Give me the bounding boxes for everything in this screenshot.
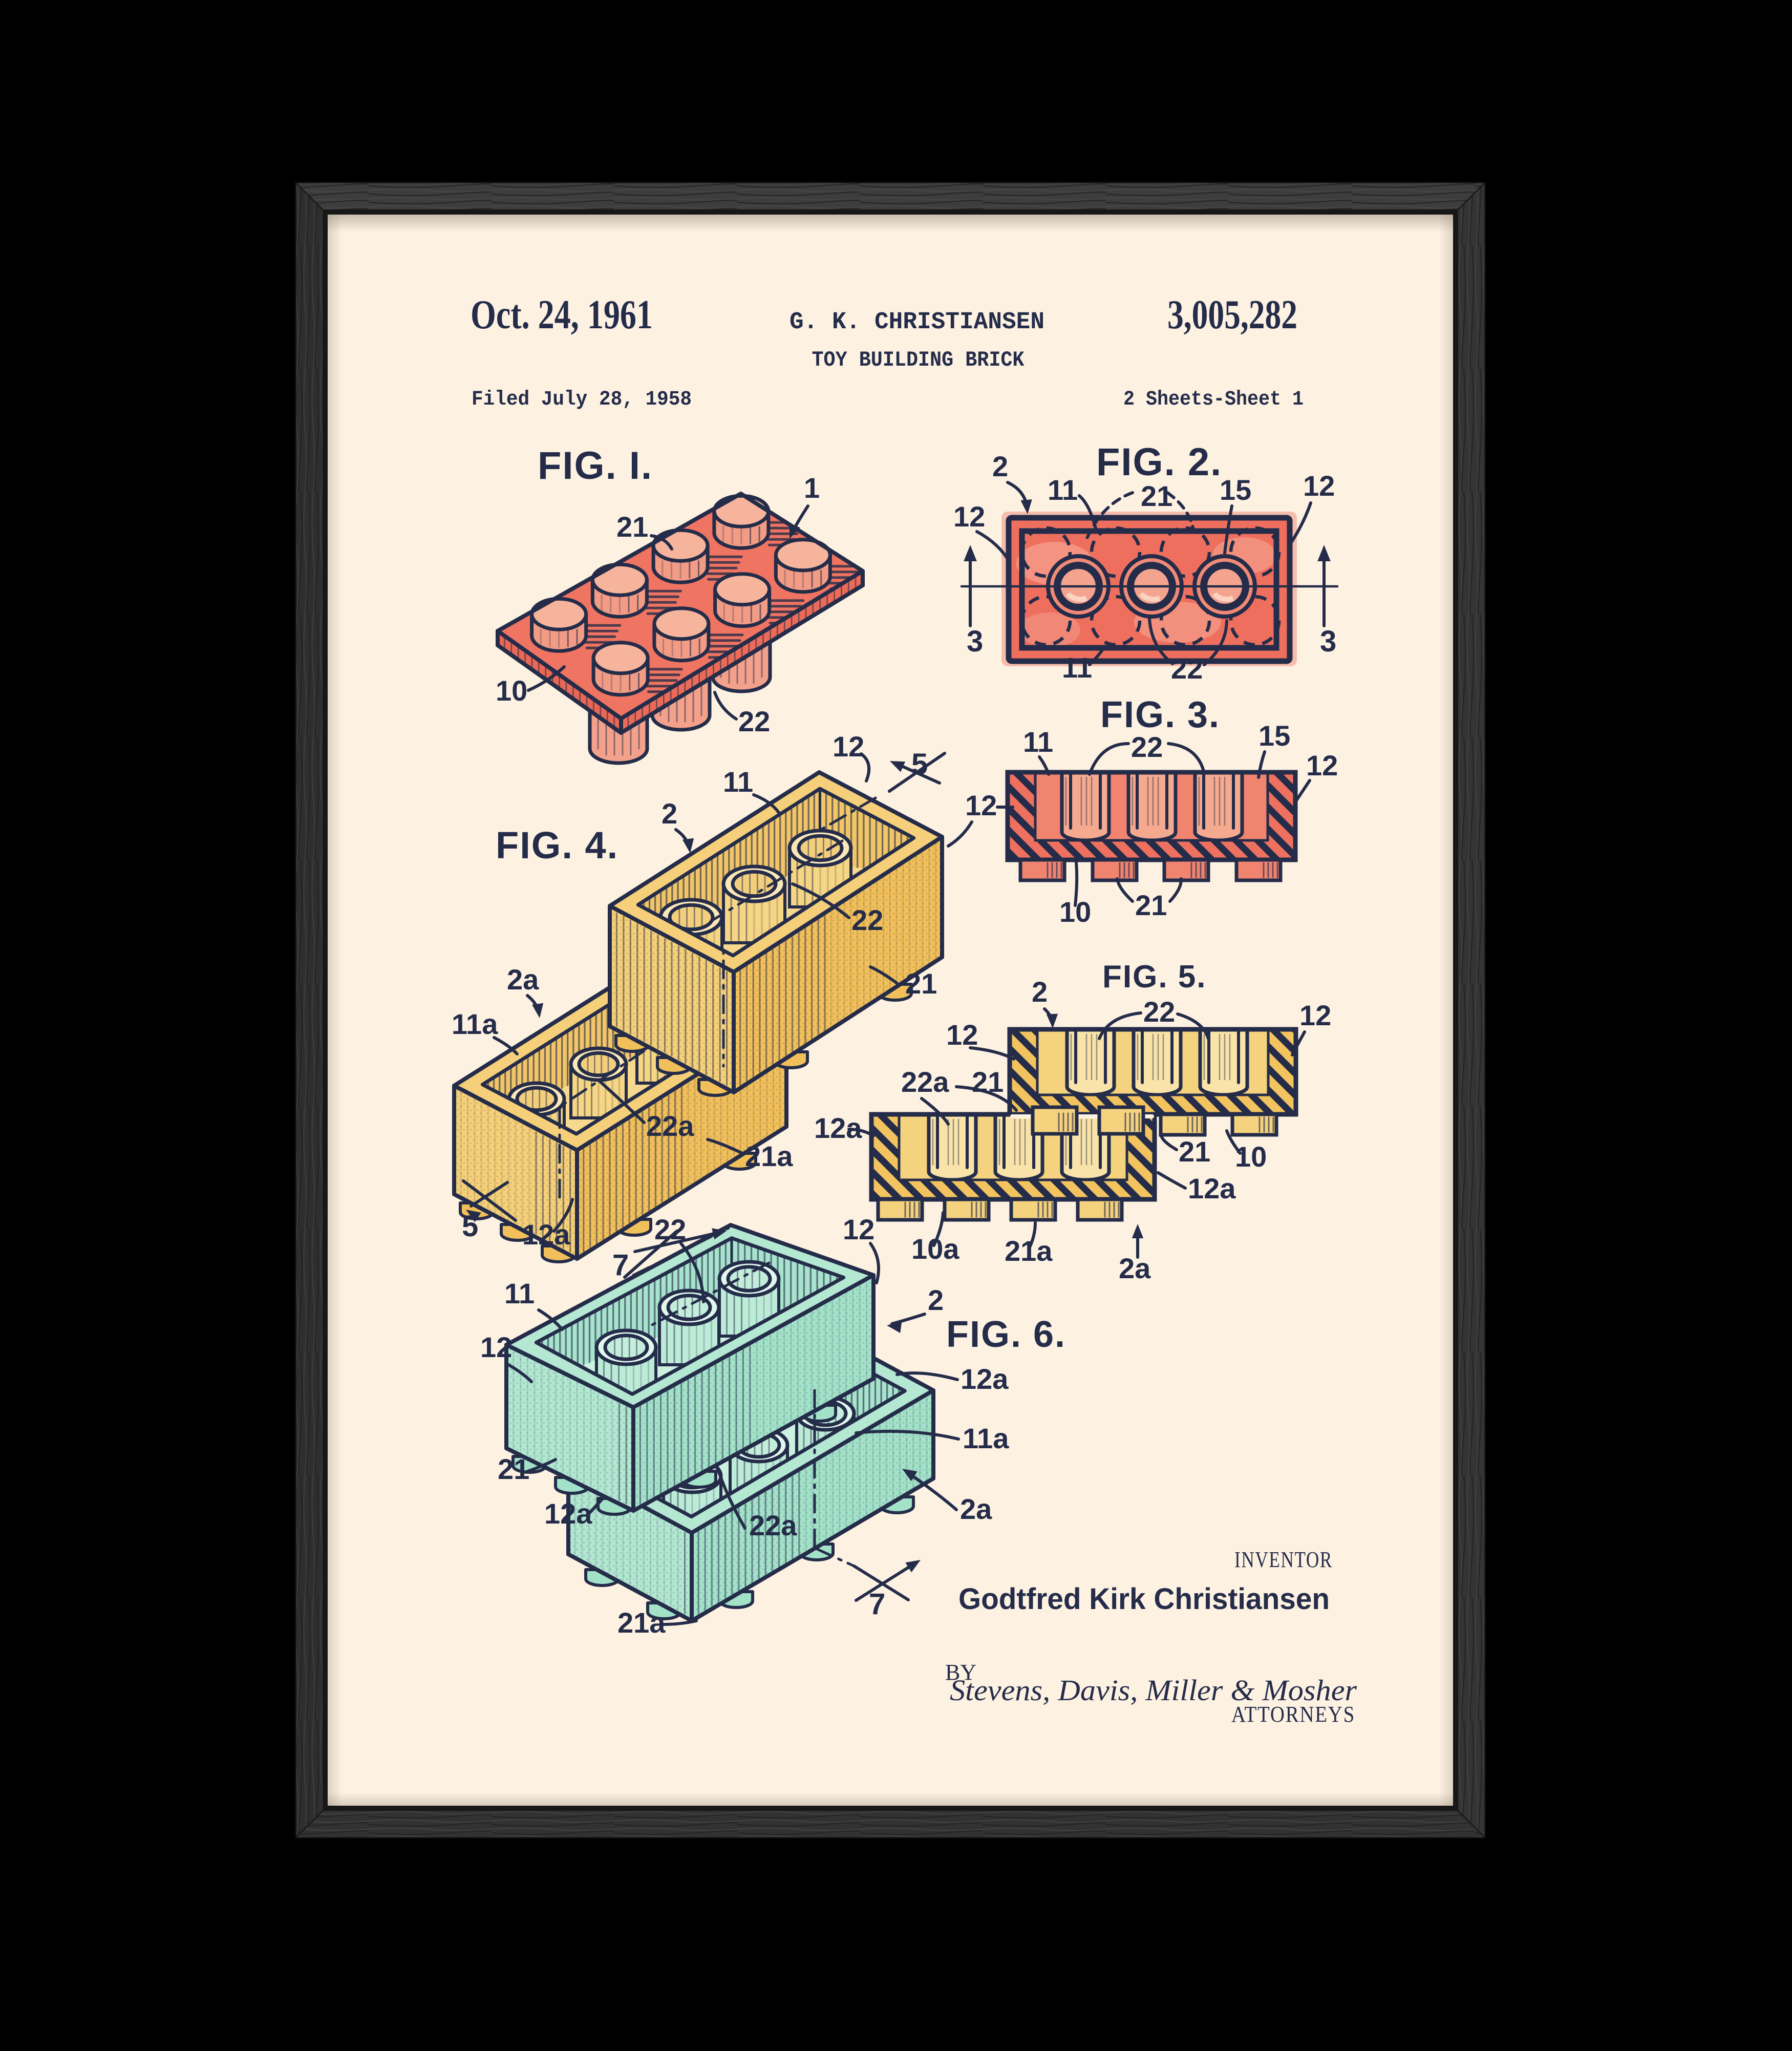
svg-text:22: 22 bbox=[851, 904, 883, 936]
svg-text:10: 10 bbox=[1235, 1140, 1267, 1173]
svg-text:3: 3 bbox=[1320, 625, 1336, 658]
svg-text:2: 2 bbox=[662, 797, 677, 830]
svg-text:22: 22 bbox=[1171, 652, 1203, 685]
svg-text:21: 21 bbox=[616, 511, 648, 543]
svg-text:22: 22 bbox=[738, 705, 770, 737]
svg-text:INVENTOR: INVENTOR bbox=[1234, 1547, 1333, 1572]
svg-text:12: 12 bbox=[946, 1019, 978, 1051]
svg-text:21a: 21a bbox=[1005, 1235, 1053, 1267]
svg-text:15: 15 bbox=[1258, 720, 1290, 752]
svg-text:2a: 2a bbox=[960, 1493, 992, 1525]
svg-text:12a: 12a bbox=[544, 1497, 592, 1530]
svg-text:12a: 12a bbox=[522, 1218, 570, 1251]
svg-text:11: 11 bbox=[1062, 651, 1092, 684]
svg-text:7: 7 bbox=[869, 1588, 885, 1621]
svg-text:21: 21 bbox=[1141, 480, 1172, 512]
svg-text:12: 12 bbox=[480, 1331, 512, 1363]
svg-text:1: 1 bbox=[804, 472, 820, 504]
svg-text:22: 22 bbox=[1131, 731, 1163, 763]
svg-text:12: 12 bbox=[1306, 749, 1338, 781]
svg-text:FIG. 3.: FIG. 3. bbox=[1100, 694, 1220, 735]
svg-text:2a: 2a bbox=[507, 963, 539, 996]
svg-text:G. K. CHRISTIANSEN: G. K. CHRISTIANSEN bbox=[790, 309, 1044, 336]
svg-text:21: 21 bbox=[905, 967, 937, 1000]
svg-text:12: 12 bbox=[1299, 999, 1331, 1031]
svg-text:2: 2 bbox=[992, 450, 1008, 482]
svg-text:12: 12 bbox=[843, 1213, 874, 1245]
svg-text:11: 11 bbox=[723, 766, 753, 798]
svg-text:12a: 12a bbox=[961, 1363, 1009, 1395]
svg-text:22: 22 bbox=[654, 1213, 686, 1245]
svg-text:11a: 11a bbox=[452, 1008, 498, 1040]
svg-text:21: 21 bbox=[498, 1453, 529, 1485]
svg-text:10a: 10a bbox=[911, 1233, 959, 1265]
svg-text:21: 21 bbox=[1179, 1135, 1210, 1168]
svg-text:22a: 22a bbox=[901, 1066, 949, 1098]
svg-text:Oct. 24, 1961: Oct. 24, 1961 bbox=[471, 292, 653, 337]
svg-text:22a: 22a bbox=[749, 1509, 797, 1541]
svg-text:21: 21 bbox=[1135, 889, 1167, 921]
svg-text:Filed July 28, 1958: Filed July 28, 1958 bbox=[472, 388, 692, 411]
svg-text:FIG. 4.: FIG. 4. bbox=[496, 824, 618, 866]
svg-text:12: 12 bbox=[833, 730, 864, 763]
svg-text:12: 12 bbox=[1303, 470, 1335, 502]
svg-text:11: 11 bbox=[1023, 726, 1053, 758]
svg-text:3,005,282: 3,005,282 bbox=[1167, 292, 1297, 337]
svg-text:12: 12 bbox=[965, 789, 997, 821]
svg-text:FIG. 5.: FIG. 5. bbox=[1102, 959, 1206, 995]
svg-text:FIG. 2.: FIG. 2. bbox=[1096, 440, 1222, 484]
svg-text:21a: 21a bbox=[617, 1606, 666, 1639]
svg-text:21: 21 bbox=[972, 1066, 1004, 1098]
svg-text:22: 22 bbox=[1143, 996, 1175, 1028]
svg-text:12a: 12a bbox=[814, 1112, 862, 1144]
svg-text:5: 5 bbox=[911, 748, 928, 781]
svg-text:2: 2 bbox=[928, 1284, 944, 1316]
svg-text:22a: 22a bbox=[646, 1110, 694, 1142]
svg-text:5: 5 bbox=[462, 1210, 478, 1243]
svg-text:11: 11 bbox=[1048, 474, 1078, 506]
svg-text:21a: 21a bbox=[745, 1140, 793, 1172]
svg-text:2a: 2a bbox=[1119, 1252, 1151, 1284]
svg-text:Godtfred Kirk Christiansen: Godtfred Kirk Christiansen bbox=[958, 1582, 1330, 1616]
svg-text:12: 12 bbox=[953, 500, 985, 533]
svg-text:2: 2 bbox=[1032, 976, 1048, 1008]
svg-text:FIG. 6.: FIG. 6. bbox=[946, 1314, 1066, 1355]
svg-text:ATTORNEYS: ATTORNEYS bbox=[1231, 1702, 1355, 1727]
svg-text:10: 10 bbox=[496, 674, 527, 707]
svg-text:7: 7 bbox=[612, 1249, 629, 1282]
svg-text:3: 3 bbox=[967, 625, 983, 658]
svg-text:11a: 11a bbox=[963, 1422, 1009, 1454]
svg-text:11: 11 bbox=[504, 1277, 535, 1309]
svg-text:15: 15 bbox=[1220, 474, 1251, 506]
svg-text:TOY BUILDING BRICK: TOY BUILDING BRICK bbox=[812, 348, 1025, 372]
svg-text:12a: 12a bbox=[1188, 1172, 1236, 1204]
svg-text:FIG. I.: FIG. I. bbox=[538, 444, 653, 488]
svg-text:2 Sheets-Sheet 1: 2 Sheets-Sheet 1 bbox=[1123, 388, 1304, 411]
